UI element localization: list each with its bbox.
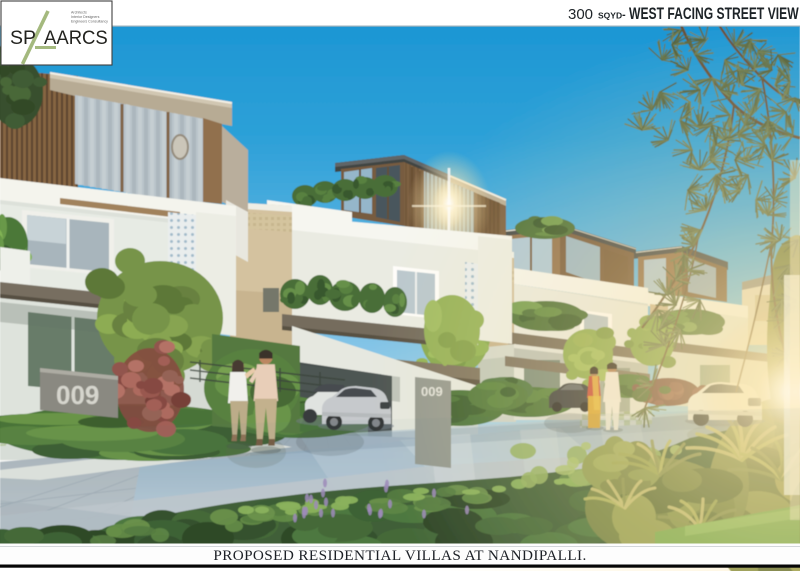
svg-text:Engineers Consultancy: Engineers Consultancy [71, 20, 108, 24]
svg-text:300: 300 [568, 6, 593, 23]
svg-text:SP: SP [10, 27, 36, 49]
svg-text:PROPOSED RESIDENTIAL VILLAS AT: PROPOSED RESIDENTIAL VILLAS AT NANDIPALL… [213, 547, 586, 564]
svg-text:Architects: Architects [71, 11, 87, 15]
svg-text:-: - [622, 9, 626, 21]
svg-text:SQYD: SQYD [598, 11, 622, 21]
svg-text:WEST FACING STREET VIEW: WEST FACING STREET VIEW [629, 5, 799, 23]
svg-text:Interior Designers: Interior Designers [71, 15, 100, 19]
svg-text:AARCS: AARCS [44, 28, 108, 50]
